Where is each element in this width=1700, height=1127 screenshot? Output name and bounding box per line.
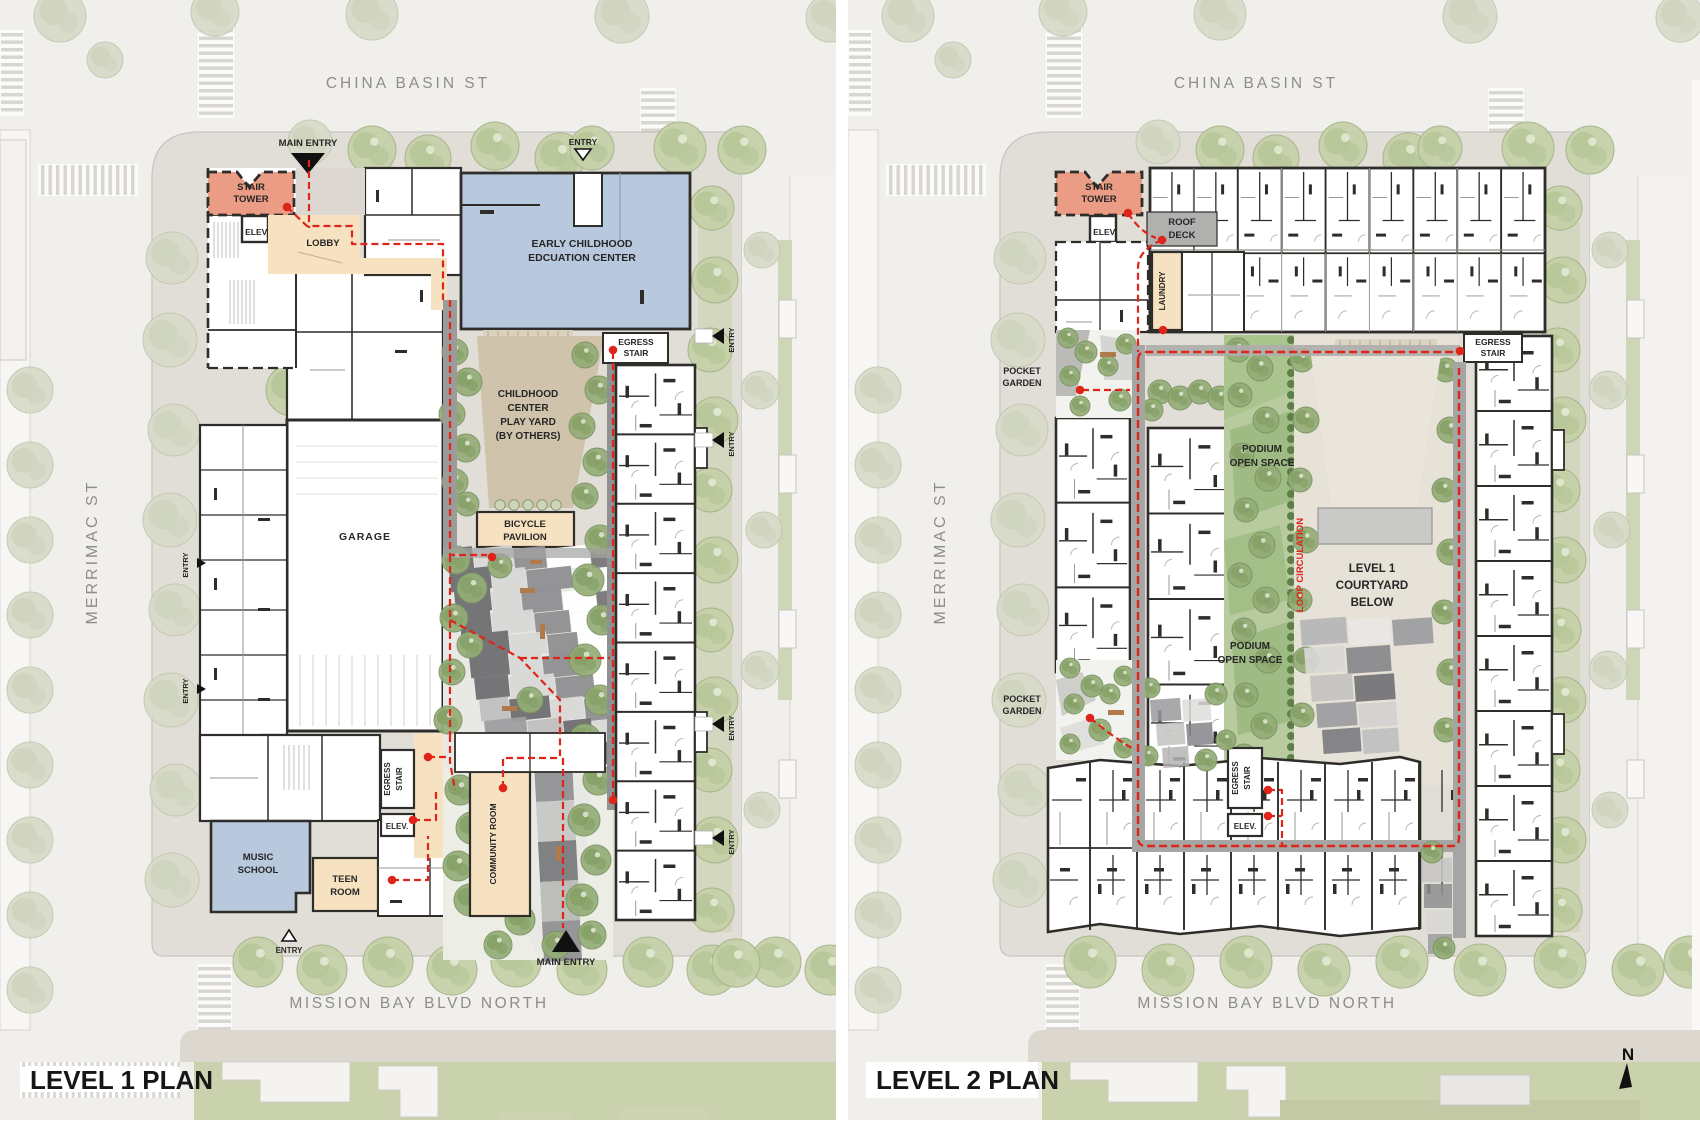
svg-text:ELEV.: ELEV. <box>386 822 408 831</box>
svg-text:EGRESS: EGRESS <box>618 337 654 347</box>
svg-text:GARDEN: GARDEN <box>1002 378 1041 388</box>
svg-text:PLAY YARD: PLAY YARD <box>500 417 556 428</box>
svg-text:ENTRY: ENTRY <box>727 715 736 740</box>
svg-text:STAIR: STAIR <box>395 767 404 791</box>
svg-text:STAIR: STAIR <box>624 348 649 358</box>
svg-text:EGRESS: EGRESS <box>1231 761 1240 795</box>
svg-text:STAIR: STAIR <box>1243 766 1252 790</box>
svg-text:LOOP CIRCULATION: LOOP CIRCULATION <box>1295 518 1306 612</box>
svg-text:SCHOOL: SCHOOL <box>238 865 279 876</box>
svg-text:N: N <box>1622 1045 1634 1064</box>
svg-text:ENTRY: ENTRY <box>727 327 736 352</box>
svg-text:COURTYARD: COURTYARD <box>1336 580 1408 592</box>
svg-text:ENTRY: ENTRY <box>181 552 190 577</box>
svg-text:ROOF: ROOF <box>1168 217 1196 228</box>
svg-text:MISSION BAY BLVD NORTH: MISSION BAY BLVD NORTH <box>289 995 548 1012</box>
svg-text:ENTRY: ENTRY <box>727 829 736 854</box>
svg-text:POCKET: POCKET <box>1003 366 1041 376</box>
svg-text:TOWER: TOWER <box>1081 194 1116 205</box>
svg-text:CHINA BASIN ST: CHINA BASIN ST <box>326 75 490 92</box>
svg-text:ENTRY: ENTRY <box>181 678 190 703</box>
svg-text:MAIN ENTRY: MAIN ENTRY <box>537 957 596 968</box>
svg-text:ENTRY: ENTRY <box>276 946 303 955</box>
svg-text:EGRESS: EGRESS <box>1475 337 1511 347</box>
svg-text:ENTRY: ENTRY <box>569 137 598 147</box>
svg-text:ELEV.: ELEV. <box>245 227 269 237</box>
svg-text:OPEN SPACE: OPEN SPACE <box>1218 655 1283 666</box>
svg-text:CHINA BASIN ST: CHINA BASIN ST <box>1174 75 1338 92</box>
svg-text:GARDEN: GARDEN <box>1002 706 1041 716</box>
svg-text:LEVEL 1: LEVEL 1 <box>1349 563 1396 575</box>
svg-text:EDCUATION CENTER: EDCUATION CENTER <box>528 252 636 264</box>
svg-text:LAUNDRY: LAUNDRY <box>1158 271 1167 310</box>
svg-text:STAIR: STAIR <box>1481 348 1506 358</box>
svg-text:STAIR: STAIR <box>1085 182 1113 193</box>
svg-text:MISSION BAY BLVD NORTH: MISSION BAY BLVD NORTH <box>1137 995 1396 1012</box>
svg-text:CHILDHOOD: CHILDHOOD <box>498 389 559 400</box>
svg-text:COMMUNITY ROOM: COMMUNITY ROOM <box>488 803 498 884</box>
svg-text:GARAGE: GARAGE <box>339 531 391 543</box>
svg-text:DECK: DECK <box>1169 230 1196 241</box>
svg-text:MERRIMAC ST: MERRIMAC ST <box>932 480 949 625</box>
svg-text:MAIN ENTRY: MAIN ENTRY <box>279 138 338 149</box>
svg-text:PAVILION: PAVILION <box>503 532 547 543</box>
svg-text:MERRIMAC ST: MERRIMAC ST <box>84 480 101 625</box>
svg-text:STAIR: STAIR <box>237 182 265 193</box>
svg-text:PODIUM: PODIUM <box>1242 444 1282 455</box>
svg-text:EGRESS: EGRESS <box>383 762 392 796</box>
svg-text:PODIUM: PODIUM <box>1230 641 1270 652</box>
svg-text:POCKET: POCKET <box>1003 694 1041 704</box>
svg-text:OPEN SPACE: OPEN SPACE <box>1230 458 1295 469</box>
svg-text:BICYCLE: BICYCLE <box>504 519 546 530</box>
svg-text:TOWER: TOWER <box>233 194 268 205</box>
svg-text:LEVEL 2 PLAN: LEVEL 2 PLAN <box>876 1065 1059 1095</box>
svg-text:MUSIC: MUSIC <box>243 852 274 863</box>
svg-text:EARLY CHILDHOOD: EARLY CHILDHOOD <box>532 238 633 250</box>
svg-text:ELEV.: ELEV. <box>1234 822 1256 831</box>
svg-text:LOBBY: LOBBY <box>306 238 340 249</box>
svg-text:BELOW: BELOW <box>1351 597 1394 609</box>
svg-text:TEEN: TEEN <box>332 874 357 885</box>
svg-text:LEVEL 1 PLAN: LEVEL 1 PLAN <box>30 1065 213 1095</box>
svg-text:ELEV.: ELEV. <box>1093 227 1117 237</box>
svg-text:ENTRY: ENTRY <box>727 431 736 456</box>
svg-text:CENTER: CENTER <box>507 403 549 414</box>
svg-text:ROOM: ROOM <box>330 887 360 898</box>
svg-text:(BY OTHERS): (BY OTHERS) <box>496 431 561 442</box>
